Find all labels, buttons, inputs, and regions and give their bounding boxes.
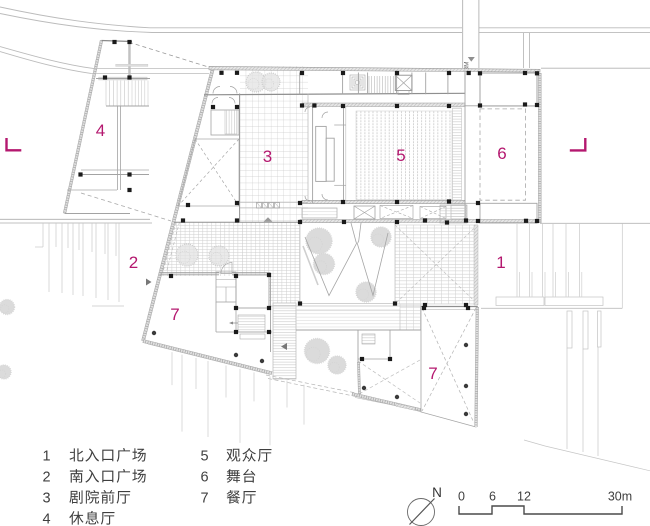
svg-text:5: 5 (200, 449, 208, 465)
svg-text:7: 7 (200, 491, 208, 507)
svg-text:6: 6 (200, 470, 208, 486)
svg-text:N: N (432, 485, 442, 500)
svg-text:6: 6 (497, 144, 506, 163)
svg-text:1: 1 (42, 449, 50, 465)
svg-text:2: 2 (129, 253, 138, 272)
svg-text:3: 3 (263, 147, 272, 166)
svg-text:0: 0 (458, 490, 465, 504)
svg-text:5: 5 (396, 146, 405, 165)
svg-text:3: 3 (42, 491, 50, 507)
svg-text:1: 1 (496, 253, 505, 272)
svg-text:4: 4 (42, 512, 50, 526)
svg-text:7: 7 (428, 364, 437, 383)
svg-text:30m: 30m (608, 490, 632, 504)
svg-text:2: 2 (42, 470, 50, 486)
svg-text:7: 7 (170, 305, 179, 324)
svg-text:6: 6 (489, 490, 496, 504)
svg-text:4: 4 (96, 121, 105, 140)
svg-text:12: 12 (517, 490, 531, 504)
